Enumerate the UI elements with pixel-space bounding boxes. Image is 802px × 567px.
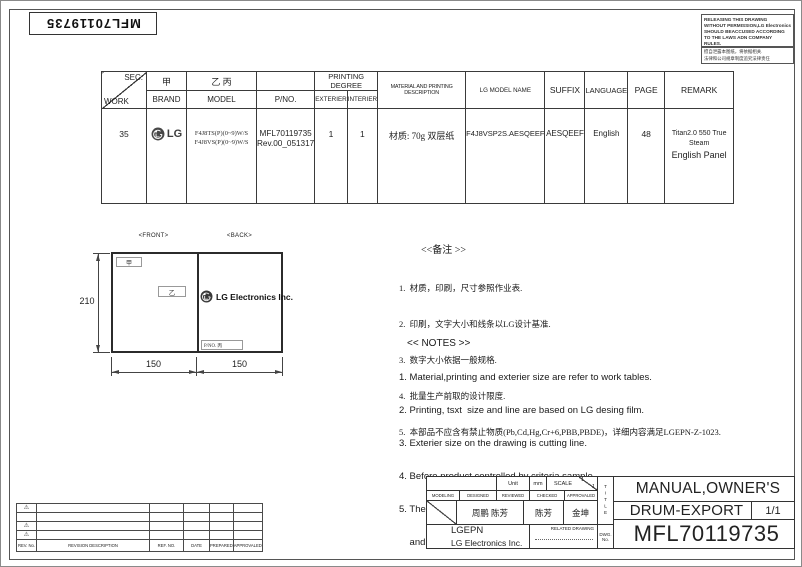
related-drawing-cell: RELATED DRAWING	[530, 525, 597, 548]
header-blank	[257, 72, 315, 91]
header-pno: P/NO.	[257, 91, 315, 109]
model-line: F4J8VS(P)(0~9)W/S	[187, 138, 256, 147]
date-header: DATE	[184, 540, 210, 552]
header-brand: BRAND	[147, 91, 187, 109]
dimension-arrow	[96, 345, 100, 352]
release-warning-chinese: 擅自泄露本图纸，将依据相关. 法律和公司规章制度追究法律责任	[701, 47, 794, 64]
ref-no-header: REF. NO.	[150, 540, 184, 552]
sheet-count: 1/1	[752, 502, 794, 520]
part-number-rotated: MFL70119735	[46, 16, 141, 31]
release-warning-english: RELEASING THIS DRAWING WITHOUT PERMISSIO…	[701, 14, 794, 47]
remark-line: Titan2.0 550 True Steam	[665, 129, 733, 149]
spec-table: SEC. WORK 甲 乙 丙 PRINTING DEGREE MATERIAL…	[101, 71, 734, 204]
page-value: 48	[628, 109, 665, 204]
lg-logo-icon	[151, 127, 165, 141]
company-short: LGEPN	[451, 525, 483, 536]
dimension-line-front	[112, 372, 196, 373]
warning-line: 法律和公司规章制度追究法律责任	[704, 56, 791, 63]
dwg-no-strip: DWG. No.	[597, 525, 614, 548]
checked-label: CHECKED	[530, 491, 565, 501]
notes-chinese-title: <<备注 >>	[399, 244, 721, 258]
header-suffix: SUFFIX	[545, 72, 585, 109]
sec-label: SEC.	[124, 73, 143, 82]
approvaled-label: APPROVALED	[565, 491, 597, 501]
lg-model-name-value: F4J8VSP2S.AESQEEF	[466, 109, 545, 204]
revision-table: ⚠ ⚠ ⚠ REV. No. REVISION DESCRIPTION REF.…	[16, 503, 263, 552]
pno-cell: MFL70119735 Rev.00_051317	[257, 109, 315, 204]
header-remark: REMARK	[665, 72, 734, 109]
drawing-number: MFL70119735	[614, 520, 794, 548]
revision-row: ⚠	[17, 522, 263, 531]
revision-header-row: REV. No. REVISION DESCRIPTION REF. NO. D…	[17, 540, 263, 552]
work-label: WORK	[104, 97, 129, 106]
brand-value: LG	[167, 128, 182, 140]
note-line: 2. Printing, tsxt size and line are base…	[399, 405, 741, 416]
revision-description-header: REVISION DESCRIPTION	[37, 540, 150, 552]
dimension-width-back-value: 150	[197, 359, 282, 369]
front-label: <FRONT>	[111, 233, 196, 239]
note-line: 1. Material,printing and exterier size a…	[399, 372, 741, 383]
part-number-rotated-box: MFL70119735	[29, 12, 157, 35]
unit-value: mm	[530, 477, 547, 491]
modeling-label: MODELING	[427, 491, 460, 501]
designed-by: 周鹏 陈芳	[457, 501, 524, 525]
title-block: Unit mm SCALE 1 1 MODELING DESIGNED REVI…	[426, 476, 795, 549]
model-cell: F4J8TS(P)(0~9)W/S F4J8VS(P)(0~9)W/S	[187, 109, 257, 204]
header-material: MATERIAL AND PRINTING DESCRIPTION	[378, 72, 466, 109]
header-interier: INTERIER	[347, 91, 377, 109]
designed-label: DESIGNED	[460, 491, 497, 501]
language-value: English	[585, 109, 628, 204]
yi-tag-box: 乙	[158, 286, 186, 297]
prepared-header: PREPARED	[210, 540, 234, 552]
interier-value: 1	[347, 109, 377, 204]
dimension-extension	[282, 357, 283, 376]
pno-line: MFL70119735	[257, 129, 314, 139]
note-line: 3. Exterier size on the drawing is cutti…	[399, 438, 741, 449]
header-exterier: EXTERIER	[315, 91, 348, 109]
dimension-arrow	[275, 370, 282, 374]
header-printing-degree: PRINTING DEGREE	[315, 72, 378, 91]
checked-by: 陈芳	[524, 501, 564, 525]
dimension-line-back	[197, 372, 282, 373]
header-lg-model-name: LG MODEL NAME	[466, 72, 545, 109]
revision-marker-icon: ⚠	[17, 531, 37, 540]
title-vertical-label: TITLE	[603, 484, 608, 517]
modeling-signature	[427, 501, 457, 525]
title-strip: TITLE	[597, 477, 614, 525]
approvaled-header: APPROVALED	[233, 540, 262, 552]
remark-line: English Panel	[665, 149, 733, 161]
dimension-width-front-value: 150	[111, 359, 196, 369]
header-jia: 甲	[147, 72, 187, 91]
notes-english-title: << NOTES >>	[399, 337, 741, 350]
pno-tag-box: P/NO. 丙	[201, 340, 243, 350]
warning-line: 擅自泄露本图纸，将依据相关.	[704, 49, 791, 56]
dimension-line-height	[98, 254, 99, 352]
revision-marker-icon: ⚠	[17, 522, 37, 531]
dimension-arrow	[96, 254, 100, 261]
revision-row: ⚠	[17, 504, 263, 513]
model-line: F4J8TS(P)(0~9)W/S	[187, 129, 256, 138]
product-title: MANUAL,OWNER'S	[614, 477, 794, 502]
pno-line: Rev.00_051317	[257, 139, 314, 149]
dimension-arrow	[197, 370, 204, 374]
exterier-value: 1	[315, 109, 348, 204]
scale-denominator: 1	[592, 484, 595, 490]
drawing-sheet: { "sheet": { "part_number_top": "MFL7011…	[0, 0, 802, 567]
scale-numerator: 1	[581, 477, 584, 483]
unit-label: Unit	[497, 477, 530, 491]
note-line: 1. 材质，印刷，尺寸参照作业表.	[399, 282, 721, 294]
title-block-blank	[427, 477, 497, 491]
header-yi-bing: 乙 丙	[187, 72, 257, 91]
back-panel-logo-text: LG Electronics Inc.	[216, 292, 293, 302]
work-value: 35	[102, 109, 147, 204]
reviewed-label: REVIEWED	[497, 491, 530, 501]
back-panel-logo: LG Electronics Inc.	[200, 290, 293, 303]
jia-tag-box: 甲	[116, 257, 142, 267]
remark-cell: Titan2.0 550 True Steam English Panel	[665, 109, 734, 204]
dimension-arrow	[189, 370, 196, 374]
rev-no-header: REV. No.	[17, 540, 37, 552]
back-label: <BACK>	[196, 233, 283, 239]
dwg-label: No.	[602, 537, 609, 542]
dimension-arrow	[112, 370, 119, 374]
warning-line: WITHOUT PERMISSION,LG Electronics	[704, 23, 791, 29]
revision-marker-icon: ⚠	[17, 504, 37, 513]
scale-label: SCALE	[547, 477, 579, 491]
scale-value: 1 1	[579, 477, 597, 491]
company-full: LG Electronics Inc.	[451, 538, 522, 548]
work-sec-header: SEC. WORK	[102, 72, 147, 109]
product-subtitle: DRUM-EXPORT	[614, 502, 752, 520]
revision-row: ⚠	[17, 531, 263, 540]
dimension-extension	[93, 352, 110, 353]
approved-by: 金坤	[564, 501, 597, 525]
related-drawing-line	[535, 531, 593, 540]
header-model: MODEL	[187, 91, 257, 109]
header-language: LANGUAGE	[585, 72, 628, 109]
company-cell: LGEPN LG Electronics Inc.	[427, 525, 530, 548]
lg-electronics-logo-icon	[200, 290, 213, 303]
brand-cell: LG	[147, 109, 187, 204]
suffix-value: AESQEEF	[545, 109, 585, 204]
dimension-height-value: 210	[77, 296, 97, 306]
panel-divider	[197, 254, 199, 351]
material-value: 材质: 70g 双层纸	[378, 109, 466, 204]
header-page: PAGE	[628, 72, 665, 109]
revision-row	[17, 513, 263, 522]
